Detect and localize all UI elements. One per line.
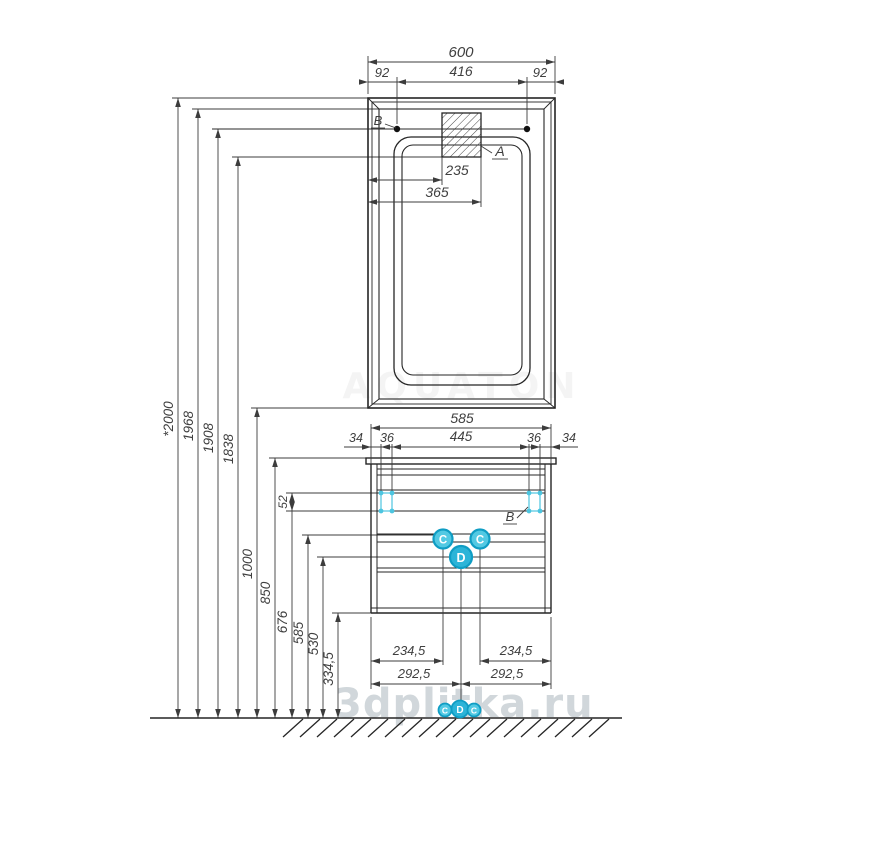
dim-bottom-inner-left: 234,5: [392, 643, 426, 658]
cabinet-marker-b-label: B: [506, 509, 515, 524]
mirror-mounting: B: [212, 113, 530, 132]
dim-cabinet-seg-34-right: 34: [562, 431, 576, 445]
cabinet-countertop: [366, 458, 556, 464]
marker-a-leader: [481, 146, 492, 153]
bracket-left: [381, 493, 392, 511]
dim-bottom-half-left: 292,5: [397, 666, 431, 681]
cabinet-width-dimensions: 585 34 36 445 36 34: [344, 410, 578, 464]
dim-height-850: 850: [258, 581, 273, 604]
dim-height-1968: 1968: [181, 410, 196, 441]
dim-height-585: 585: [291, 621, 306, 644]
dim-cabinet-seg-34-left: 34: [349, 431, 363, 445]
dim-height-1908: 1908: [201, 422, 216, 453]
dim-mirror-right-offset: 92: [533, 65, 548, 80]
technical-drawing-page: AQUATON 3dplitka.ru: [0, 0, 874, 853]
dim-height-1838: 1838: [221, 433, 236, 464]
dim-height-334-5: 334,5: [321, 652, 336, 686]
marker-c-left-label: C: [439, 535, 447, 547]
dim-cabinet-seg-36-left: 36: [380, 431, 394, 445]
dim-cabinet-total-width: 585: [450, 410, 474, 426]
dim-height-total: *2000: [161, 401, 176, 437]
dim-cabinet-seg-445: 445: [450, 429, 473, 444]
dim-mirror-total-width: 600: [448, 44, 474, 61]
floor-marker-d-label: D: [456, 705, 463, 716]
marker-a-label: A: [494, 143, 504, 159]
floor-marker-c-right-label: C: [471, 706, 477, 716]
mirror-lamp-zone: A: [442, 113, 508, 159]
dim-mirror-center-span: 416: [449, 63, 473, 79]
cabinet-marker-b-leader: [517, 507, 528, 518]
dim-lamp-left: 235: [444, 162, 469, 178]
marker-c-right-label: C: [476, 535, 484, 547]
dim-bottom-inner-right: 234,5: [499, 643, 533, 658]
marker-d-label: D: [456, 551, 465, 565]
dim-cabinet-seg-36-right: 36: [527, 431, 541, 445]
marker-b-leader: [385, 124, 396, 128]
dim-height-1000: 1000: [240, 548, 255, 579]
drain-markers: C C D: [434, 530, 490, 569]
mounting-point-left: [394, 126, 400, 132]
mounting-point-right: [524, 126, 530, 132]
dim-height-530: 530: [306, 632, 321, 655]
cabinet-mounting-brackets: B: [379, 491, 543, 524]
bracket-right: [529, 493, 540, 511]
floor-drain-markers: C D C: [439, 701, 481, 718]
dim-mirror-left-offset: 92: [375, 65, 390, 80]
lamp-hatch-area: [442, 113, 481, 157]
floor-marker-c-left-label: C: [442, 706, 448, 716]
dim-bracket-height: 52: [276, 495, 290, 509]
dim-lamp-right: 365: [425, 184, 449, 200]
cabinet: [366, 444, 556, 701]
marker-b-label: B: [374, 113, 383, 128]
dim-bottom-half-right: 292,5: [490, 666, 524, 681]
installation-drawing: AQUATON 3dplitka.ru: [0, 0, 874, 853]
dim-height-676: 676: [275, 610, 290, 633]
